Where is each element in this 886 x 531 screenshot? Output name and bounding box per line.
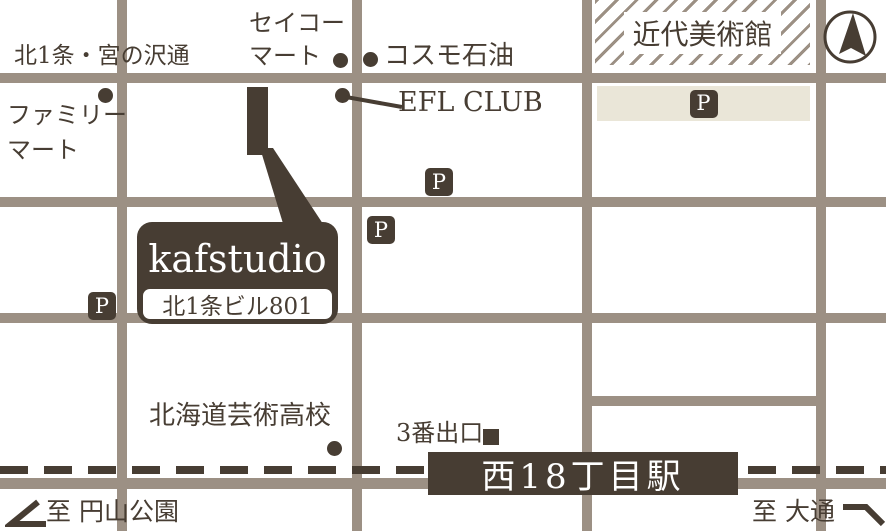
road-horizontal-1 xyxy=(0,73,886,83)
parking-icon: P xyxy=(425,168,453,196)
road-vertical-1 xyxy=(117,0,127,531)
studio-name: kafstudio xyxy=(137,229,338,289)
road-vertical-2 xyxy=(352,0,362,531)
to-odori-label: 至 大通 xyxy=(752,498,835,527)
cosmo-oil-dot xyxy=(363,52,378,67)
parking-icon: P xyxy=(690,90,718,118)
studio-address: 北1条ビル801 xyxy=(143,289,332,319)
station-box: 西18丁目駅 xyxy=(428,452,738,495)
parking-icon: P xyxy=(367,216,395,244)
kafstudio-building-marker xyxy=(247,87,268,155)
efl-club-dot xyxy=(335,88,350,103)
road-vertical-4 xyxy=(816,0,826,531)
exit-3-marker xyxy=(483,429,499,445)
efl-club-label: EFL CLUB xyxy=(398,87,543,118)
museum-label: 近代美術館 xyxy=(624,12,780,54)
access-map: 近代美術館 P P P P kafstudio 北1条ビル801 西18丁目駅 … xyxy=(0,0,886,531)
seiko-mart-label-line1: セイコー xyxy=(249,10,345,38)
kafstudio-callout: kafstudio 北1条ビル801 xyxy=(137,222,338,324)
road-horizontal-4 xyxy=(582,396,826,406)
compass-icon xyxy=(820,7,880,67)
to-maruyama-park-label: 至 円山公園 xyxy=(46,498,179,527)
exit-3-label: 3番出口 xyxy=(396,420,483,448)
seiko-mart-label-line2: マート xyxy=(249,43,321,71)
arrow-down-right-icon xyxy=(840,503,886,529)
road-horizontal-2 xyxy=(0,197,886,207)
road-horizontal-3 xyxy=(0,313,886,323)
museum-parking-lot: P xyxy=(597,86,810,121)
avenue-label: 北1条・宮の沢通 xyxy=(14,43,190,69)
callout-tail xyxy=(260,148,327,230)
high-school-label: 北海道芸術高校 xyxy=(149,402,331,432)
family-mart-label-line2: マート xyxy=(7,137,79,165)
family-mart-label-line1: ファミリー xyxy=(7,102,127,130)
museum-area: 近代美術館 xyxy=(595,0,810,65)
high-school-dot xyxy=(327,441,342,456)
cosmo-oil-label: コスモ石油 xyxy=(384,42,514,72)
parking-icon: P xyxy=(88,292,116,320)
seiko-mart-dot xyxy=(333,53,348,68)
arrow-down-left-icon xyxy=(5,498,49,528)
